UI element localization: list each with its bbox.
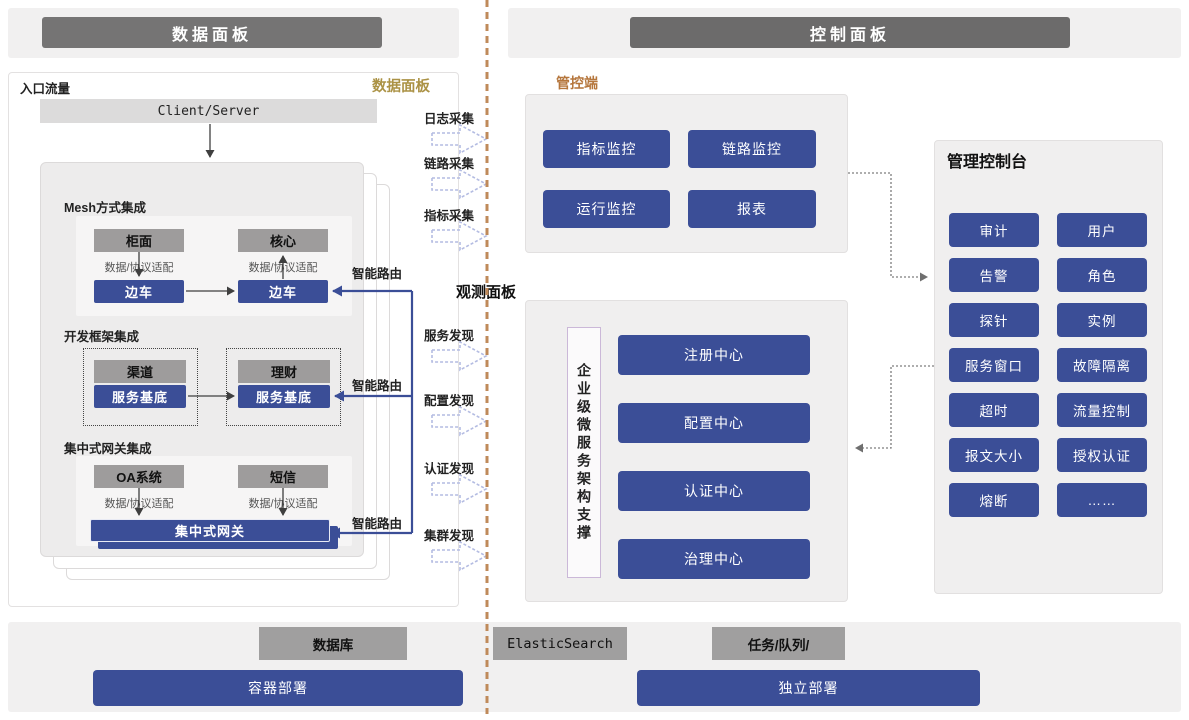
mesh-app-right-node: 核心 <box>238 229 328 252</box>
smart-route-label-2: 智能路由 <box>352 375 402 394</box>
console-tag-label: 管控端 <box>556 73 598 93</box>
data-plane-header: 数据面板 <box>42 17 382 48</box>
monitor-panel <box>525 94 848 253</box>
admin-to-microservice-connector <box>856 366 934 448</box>
database-node: 数据库 <box>259 627 407 660</box>
timeout-node: 超时 <box>949 393 1039 427</box>
registry-center-node: 注册中心 <box>618 335 810 375</box>
gateway-adapter-left-label: 数据/协议适配 <box>94 495 184 511</box>
data-plane-tag: 数据面板 <box>372 75 430 96</box>
metric-collect-label: 指标采集 <box>424 205 474 224</box>
enterprise-support-label: 企业级微服务架构支撑 <box>574 363 594 543</box>
enterprise-support-vertical: 企业级微服务架构支撑 <box>567 327 601 578</box>
governance-center-node: 治理中心 <box>618 539 810 579</box>
gateway-app-right-node: 短信 <box>238 465 328 488</box>
sidecar-left-node: 边车 <box>94 280 184 303</box>
mesh-adapter-right-label: 数据/协议适配 <box>238 259 328 275</box>
user-node: 用户 <box>1057 213 1147 247</box>
mesh-app-left-node: 柜面 <box>94 229 184 252</box>
gateway-section-title: 集中式网关集成 <box>64 438 152 457</box>
control-plane-header: 控制面板 <box>630 17 1070 48</box>
trace-monitor-node: 链路监控 <box>688 130 816 168</box>
elasticsearch-node: ElasticSearch <box>493 627 627 660</box>
admin-console-title: 管理控制台 <box>947 148 1027 172</box>
observe-panel-label: 观测面板 <box>456 281 516 302</box>
runtime-monitor-node: 运行监控 <box>543 190 670 228</box>
probe-node: 探针 <box>949 303 1039 337</box>
alert-node: 告警 <box>949 258 1039 292</box>
smart-route-label-3: 智能路由 <box>352 513 402 532</box>
audit-node: 审计 <box>949 213 1039 247</box>
config-discover-label: 配置发现 <box>424 390 474 409</box>
diagram-canvas: 数据面板 控制面板 入口流量 数据面板 Client/Server Mesh方式… <box>0 0 1189 720</box>
auth-center-node: 认证中心 <box>618 471 810 511</box>
trace-collect-label: 链路采集 <box>424 153 474 172</box>
service-base-right-node: 服务基底 <box>238 385 330 408</box>
container-deploy-node: 容器部署 <box>93 670 463 706</box>
instance-node: 实例 <box>1057 303 1147 337</box>
message-size-node: 报文大小 <box>949 438 1039 472</box>
gateway-adapter-right-label: 数据/协议适配 <box>238 495 328 511</box>
fault-isolation-node: 故障隔离 <box>1057 348 1147 382</box>
role-node: 角色 <box>1057 258 1147 292</box>
traffic-control-node: 流量控制 <box>1057 393 1147 427</box>
config-center-node: 配置中心 <box>618 403 810 443</box>
authz-node: 授权认证 <box>1057 438 1147 472</box>
framework-section-title: 开发框架集成 <box>64 326 139 345</box>
gateway-app-left-node: OA系统 <box>94 465 184 488</box>
monitor-to-admin-connector <box>848 173 927 277</box>
central-gateway-node: 集中式网关 <box>90 519 330 542</box>
service-discover-label: 服务发现 <box>424 325 474 344</box>
framework-app-left-node: 渠道 <box>94 360 186 383</box>
mesh-section-title: Mesh方式集成 <box>64 197 146 216</box>
ingress-traffic-label: 入口流量 <box>20 78 70 97</box>
report-node: 报表 <box>688 190 816 228</box>
task-queue-node: 任务/队列/ <box>712 627 845 660</box>
admin-console-grid: 审计 用户 告警 角色 探针 实例 服务窗口 故障隔离 超时 流量控制 报文大小… <box>949 213 1147 517</box>
mesh-adapter-left-label: 数据/协议适配 <box>94 259 184 275</box>
service-base-left-node: 服务基底 <box>94 385 186 408</box>
more-node: …… <box>1057 483 1147 517</box>
metric-monitor-node: 指标监控 <box>543 130 670 168</box>
log-collect-label: 日志采集 <box>424 108 474 127</box>
framework-app-right-node: 理财 <box>238 360 330 383</box>
sidecar-right-node: 边车 <box>238 280 328 303</box>
standalone-deploy-node: 独立部署 <box>637 670 980 706</box>
service-window-node: 服务窗口 <box>949 348 1039 382</box>
smart-route-label-1: 智能路由 <box>352 263 402 282</box>
circuit-breaker-node: 熔断 <box>949 483 1039 517</box>
client-server-node: Client/Server <box>40 99 377 123</box>
cluster-discover-label: 集群发现 <box>424 525 474 544</box>
auth-discover-label: 认证发现 <box>424 458 474 477</box>
